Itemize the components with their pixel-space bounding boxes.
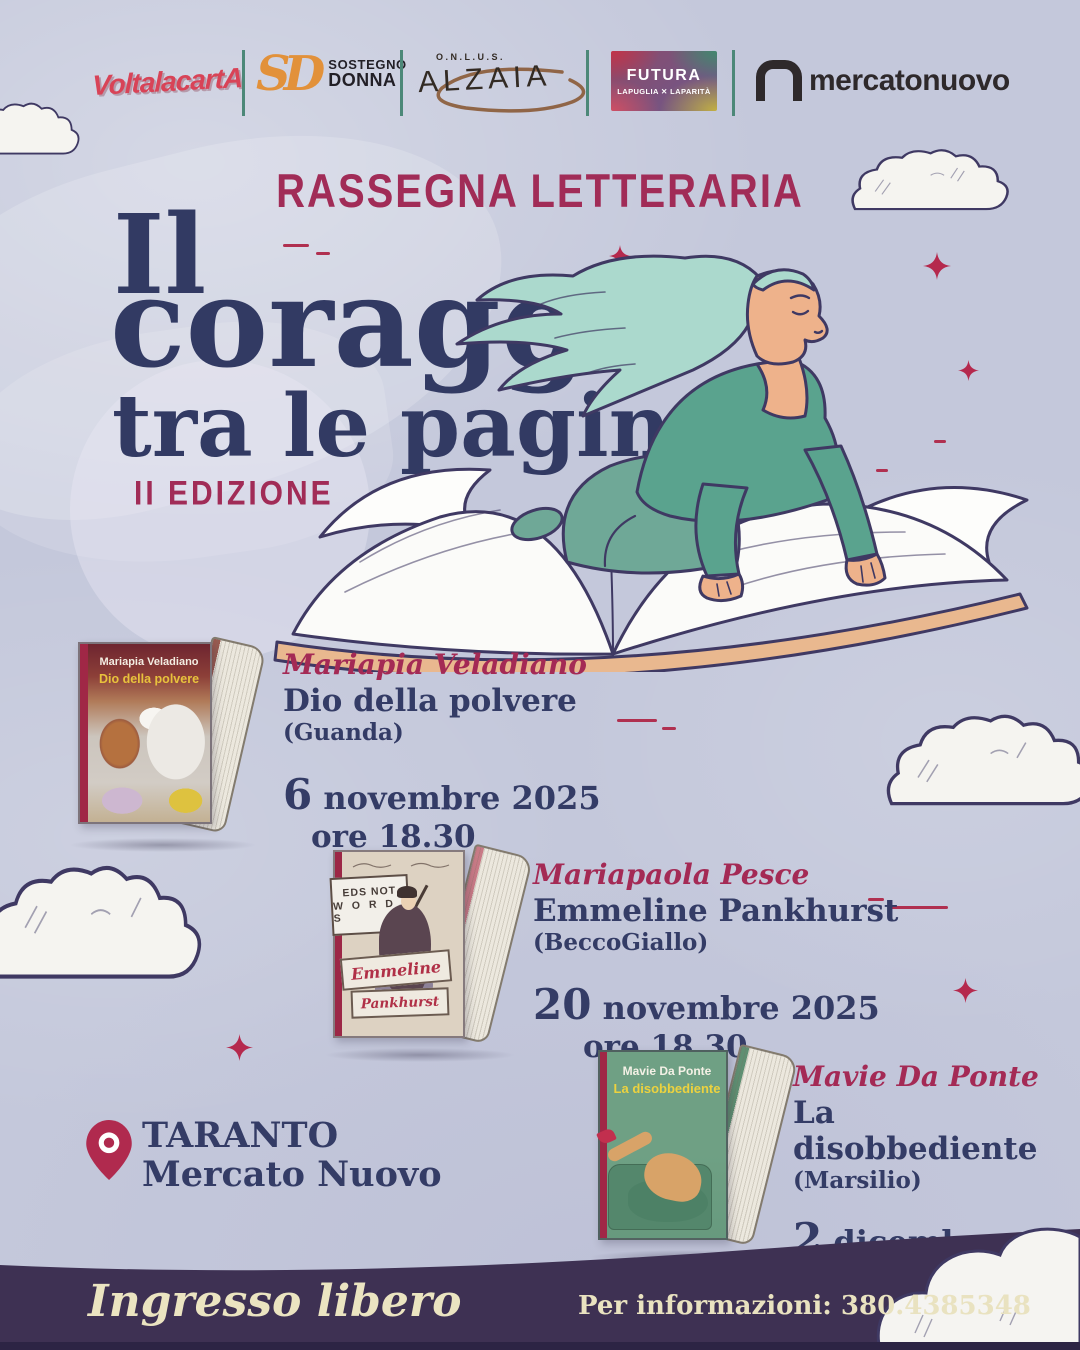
book-spine <box>600 1052 607 1238</box>
flying-book-illustration <box>265 232 1035 672</box>
logo-divider <box>732 50 735 116</box>
event-poster: VoltalacartA SD SOSTEGNO DONNA O.N.L.U.S… <box>0 0 1080 1350</box>
location-city: TARANTO <box>142 1116 442 1155</box>
cover-author-scribble <box>349 858 453 872</box>
ribbon-banner: Emmeline <box>340 949 452 990</box>
event-date: 6 novembre 2025 <box>283 770 601 819</box>
book-spine <box>80 644 88 822</box>
dash-accent <box>617 719 657 722</box>
book-cover-art <box>88 644 210 822</box>
book-front: EDS NOT W O R D S Emmeline Pankhurst <box>333 850 465 1038</box>
cover-title-text: La disobbediente <box>608 1081 726 1096</box>
logo-divider <box>586 50 589 116</box>
cloud <box>850 146 1018 212</box>
logo-alzaia: O.N.L.U.S. ALZAIA <box>418 52 578 96</box>
event-1: Mariapia Veladiano Dio della polvere (Gu… <box>283 648 601 855</box>
mercato-arch-icon <box>756 60 802 101</box>
cloud <box>885 710 1080 808</box>
cloud <box>0 100 86 156</box>
event-author: Mariapia Veladiano <box>283 648 601 681</box>
cover-author-text: Mavie Da Ponte <box>608 1064 726 1078</box>
sparkle-icon <box>226 1034 253 1061</box>
info-phone-label: Per informazioni: 380.4385348 <box>578 1291 1031 1321</box>
location-pin-icon <box>86 1120 132 1180</box>
event-author: Mavie Da Ponte <box>793 1060 1080 1093</box>
event-publisher: (Marsilio) <box>793 1167 1080 1194</box>
event-publisher: (Guanda) <box>283 719 601 746</box>
event-book-title: Dio della polvere <box>283 683 601 719</box>
event-date-rest: novembre 2025 <box>603 989 880 1027</box>
event-book-title: Emmeline Pankhurst <box>533 893 898 929</box>
cloud <box>0 860 214 982</box>
event-publisher: (BeccoGiallo) <box>533 929 898 956</box>
sparkle-icon <box>953 978 978 1003</box>
logo-divider <box>242 50 245 116</box>
location-venue: Mercato Nuovo <box>142 1155 442 1194</box>
event-2: Mariapaola Pesce Emmeline Pankhurst (Bec… <box>533 858 898 1065</box>
sostegno-donna-monogram: SD <box>256 50 318 98</box>
book-cover-emmeline-pankhurst: EDS NOT W O R D S Emmeline Pankhurst <box>315 842 525 1064</box>
mercato-wordmark: mercatonuovo <box>809 64 1010 98</box>
futura-wordmark: FUTURA <box>627 67 702 85</box>
ribbon-banner: Pankhurst <box>351 987 450 1018</box>
event-book-title: La disobbediente <box>793 1095 1080 1167</box>
ribbon-text-line2: Pankhurst <box>361 994 440 1013</box>
logo-divider <box>400 50 403 116</box>
location-block: TARANTO Mercato Nuovo <box>142 1116 442 1194</box>
cover-title-text: Dio della polvere <box>88 672 210 686</box>
book-shadow <box>325 1048 515 1062</box>
dash-accent <box>662 727 676 730</box>
logo-sostegno-donna: SD SOSTEGNO DONNA <box>256 50 407 98</box>
book-front: Mariapia Veladiano Dio della polvere <box>78 642 212 824</box>
cover-author-text: Mariapia Veladiano <box>88 656 210 668</box>
admission-label: Ingresso libero <box>88 1276 461 1327</box>
book-cover-dio-della-polvere: Mariapia Veladiano Dio della polvere <box>58 632 268 854</box>
event-date: 20 novembre 2025 <box>533 980 898 1029</box>
sostegno-label: SOSTEGNO <box>328 58 406 71</box>
event-date-day: 6 <box>283 770 312 819</box>
logo-mercato-nuovo: mercatonuovo <box>756 60 1010 101</box>
event-author: Mariapaola Pesce <box>533 858 898 891</box>
futura-tagline: LAPUGLIA ✕ LAPARITÀ <box>617 87 710 96</box>
ribbon-text-line1: Emmeline <box>350 957 442 984</box>
logo-futura: FUTURA LAPUGLIA ✕ LAPARITÀ <box>611 51 717 111</box>
book-front: Mavie Da Ponte La disobbediente <box>598 1050 728 1240</box>
book-shadow <box>70 838 256 852</box>
event-date-day: 20 <box>533 980 591 1029</box>
donna-label: DONNA <box>328 71 406 89</box>
figure-hair <box>397 886 417 898</box>
event-date-rest: novembre 2025 <box>323 779 600 817</box>
dash-accent <box>890 906 948 909</box>
